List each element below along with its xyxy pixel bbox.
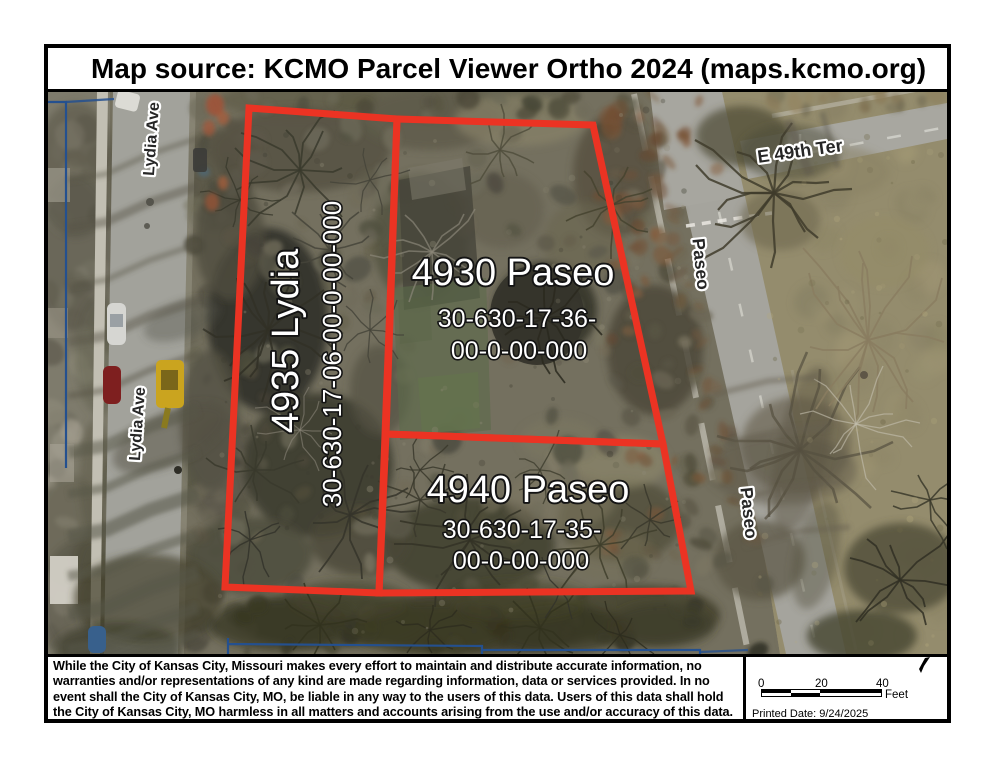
svg-text:4940 Paseo: 4940 Paseo (427, 469, 630, 511)
svg-text:30-630-17-36-: 30-630-17-36- (438, 305, 596, 333)
svg-text:00-0-00-000: 00-0-00-000 (453, 547, 589, 575)
svg-text:4930 Paseo: 4930 Paseo (412, 252, 615, 294)
svg-text:30-630-17-35-: 30-630-17-35- (443, 516, 601, 544)
svg-text:00-0-00-000: 00-0-00-000 (451, 337, 587, 365)
svg-text:4935 Lydia: 4935 Lydia (265, 248, 307, 433)
svg-text:30-630-17-06-00-0-00-000: 30-630-17-06-00-0-00-000 (317, 201, 347, 507)
